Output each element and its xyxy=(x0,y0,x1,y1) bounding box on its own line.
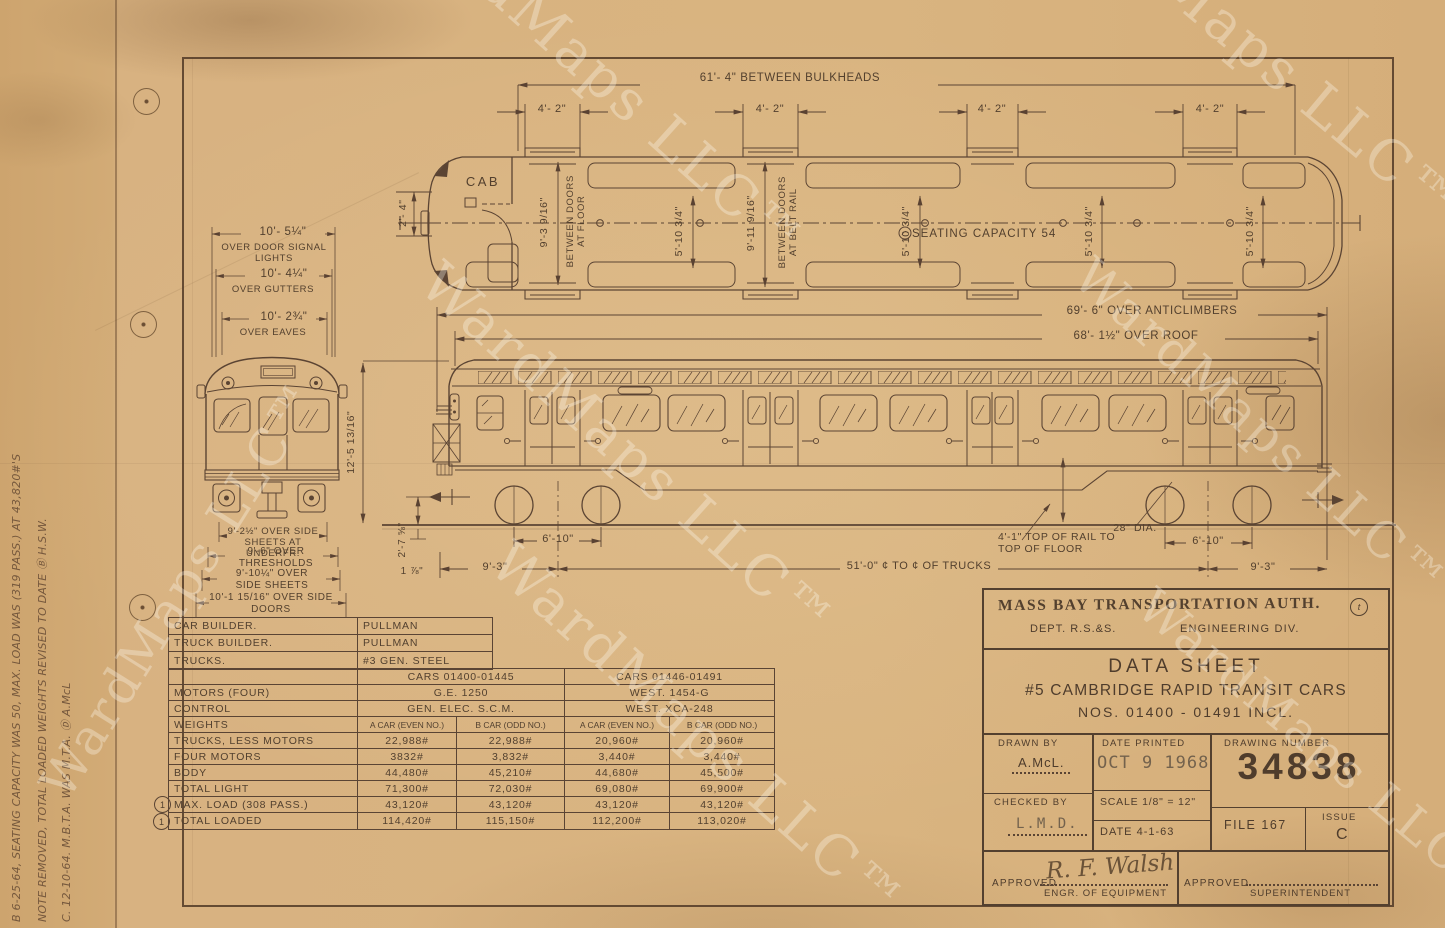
front-dim-3-value: 10'- 2¾" xyxy=(250,311,318,325)
row-value: 69,900# xyxy=(670,781,774,797)
issue-label: ISSUE xyxy=(1322,812,1357,823)
authority-stamp: MASS BAY TRANSPORTATION AUTH. xyxy=(998,595,1321,615)
row-value: 43,120# xyxy=(670,797,774,813)
group-header-2: CARS 01446-01491 xyxy=(565,669,774,685)
row-label: FOUR MOTORS xyxy=(169,749,358,765)
wheel-diameter: 28" DIA. xyxy=(1105,522,1165,534)
row-value: 22,988# xyxy=(457,733,565,749)
weights-col-3: A CAR (EVEN NO.) xyxy=(565,717,670,733)
row-value: 3832# xyxy=(358,749,457,765)
builder-table: CAR BUILDER. PULLMAN TRUCK BUILDER. PULL… xyxy=(168,617,493,670)
row-value: 71,300# xyxy=(358,781,457,797)
row-value: 113,020# xyxy=(670,813,774,829)
between-doors-beltrail-label: BETWEEN DOORS AT BELT RAIL xyxy=(777,167,799,277)
row-label: TOTAL LOADED xyxy=(169,813,358,829)
row-label: BODY xyxy=(169,765,358,781)
front-dim-2-value: 10'- 4¼" xyxy=(246,268,322,282)
row-label: TRUCKS, LESS MOTORS xyxy=(169,733,358,749)
dim-door-opening-3: 4'- 2" xyxy=(962,103,1022,116)
motors-west: WEST. 1454-G xyxy=(565,685,774,701)
dim-truck-overhang-right: 9'-3" xyxy=(1233,561,1293,574)
motors-ge: G.E. 1250 xyxy=(358,685,565,701)
control-west: WEST. XCA-248 xyxy=(565,701,774,717)
dim-small: 1 ⅞" xyxy=(390,566,434,578)
checked-by-value: L.M.D. xyxy=(1008,816,1087,836)
dim-truck-wheelbase-left: 6'-10" xyxy=(528,533,588,546)
row-value: 114,420# xyxy=(358,813,457,829)
row-label: TOTAL LIGHT xyxy=(169,781,358,797)
drawn-by-value: A.McL. xyxy=(1012,755,1070,774)
row-value: 45,210# xyxy=(457,765,565,781)
date-printed-stamp: OCT 9 1968 xyxy=(1097,753,1209,773)
cab-label: CAB xyxy=(460,174,506,189)
date-printed-label: DATE PRINTED xyxy=(1102,738,1185,749)
row-value: 44,680# xyxy=(565,765,670,781)
table-label: TRUCKS. xyxy=(169,652,358,669)
row-value: 20,960# xyxy=(565,733,670,749)
table-value: PULLMAN xyxy=(358,618,492,635)
drawn-by-label: DRAWN BY xyxy=(998,738,1058,749)
row-value: 69,080# xyxy=(565,781,670,797)
note-mark-2: 1 xyxy=(153,813,170,830)
table-label: TRUCK BUILDER. xyxy=(169,635,358,652)
dim-over-anticlimbers: 69'- 6" OVER ANTICLIMBERS xyxy=(1046,305,1258,319)
note-mark-1: 1 xyxy=(154,796,171,813)
between-doors-floor-label: BETWEEN DOORS AT FLOOR xyxy=(565,166,587,276)
title-block: MASS BAY TRANSPORTATION AUTH. t DEPT. R.… xyxy=(982,588,1390,906)
table-label: CAR BUILDER. xyxy=(169,618,358,635)
side-elevation xyxy=(363,307,1396,578)
file-value: FILE 167 xyxy=(1224,818,1287,832)
front-dim-b4: 10'-1 15/16" OVER SIDE DOORS xyxy=(208,592,334,616)
front-dim-1-label: OVER DOOR SIGNAL LIGHTS xyxy=(208,242,340,264)
row-value: 45,500# xyxy=(670,765,774,781)
approved-dotted-line xyxy=(1040,872,1168,886)
date-value: DATE 4-1-63 xyxy=(1100,826,1174,838)
table-cell-empty xyxy=(169,669,358,685)
corner-mark: t xyxy=(1350,598,1368,616)
dim-coupler-height: 2'-7 ⅝" xyxy=(397,508,409,572)
row-value: 43,120# xyxy=(565,797,670,813)
dim-door-opening-2: 4'- 2" xyxy=(740,103,800,116)
engr-of-equipment: ENGR. OF EQUIPMENT xyxy=(1044,888,1167,899)
front-dim-2-label: OVER GUTTERS xyxy=(230,284,316,295)
dim-car-width-4: 5'-10 3/4" xyxy=(1244,189,1256,273)
row-value: 112,200# xyxy=(565,813,670,829)
row-value: 3,440# xyxy=(670,749,774,765)
dim-car-width-3: 5'-10 3/4" xyxy=(1083,189,1095,273)
row-value: 43,120# xyxy=(358,797,457,813)
dim-truck-overhang-left: 9'-3" xyxy=(465,561,525,574)
seating-capacity: SEATING CAPACITY 54 xyxy=(912,228,1107,242)
dim-over-roof: 68'- 1½" OVER ROOF xyxy=(1050,330,1222,344)
row-value: 20,960# xyxy=(670,733,774,749)
dept-label: DEPT. R.S.&S. xyxy=(1030,623,1116,635)
group-header-1: CARS 01400-01445 xyxy=(358,669,565,685)
table-value: #3 GEN. STEEL xyxy=(358,652,492,669)
row-value: 3,832# xyxy=(457,749,565,765)
car-numbers: NOS. 01400 - 01491 INCL. xyxy=(984,704,1388,720)
table-value: PULLMAN xyxy=(358,635,492,652)
dim-door-opening-1: 4'- 2" xyxy=(522,103,582,116)
sheet-subtitle: #5 CAMBRIDGE RAPID TRANSIT CARS xyxy=(984,682,1388,700)
dim-truck-centers: 51'-0" ¢ TO ¢ OF TRUCKS xyxy=(838,560,1000,573)
approved2-label: APPROVED xyxy=(1184,878,1249,889)
dim-between-doors-floor: 9'-3 9/16" xyxy=(538,182,550,262)
drawing-number: 34838 xyxy=(1210,746,1388,788)
front-dim-3-label: OVER EAVES xyxy=(236,327,310,338)
superintendent: SUPERINTENDENT xyxy=(1250,888,1351,899)
row-value: 3,440# xyxy=(565,749,670,765)
row-value: 72,030# xyxy=(457,781,565,797)
dim-rail-to-floor: 4'-1" TOP OF RAIL TO TOP OF FLOOR xyxy=(998,531,1136,556)
row-label: MAX. LOAD (308 PASS.) xyxy=(169,797,358,813)
motors-label: MOTORS (FOUR) xyxy=(169,685,358,701)
division-label: ENGINEERING DIV. xyxy=(1180,623,1300,635)
dim-car-width-1: 5'-10 3/4" xyxy=(673,189,685,273)
sheet-title: DATA SHEET xyxy=(984,656,1388,678)
weights-col-4: B CAR (ODD NO.) xyxy=(670,717,774,733)
issue-value: C xyxy=(1336,826,1348,844)
weights-col-1: A CAR (EVEN NO.) xyxy=(358,717,457,733)
blueprint-sheet: 61'- 4" BETWEEN BULKHEADS 4'- 2" 4'- 2" … xyxy=(0,0,1445,928)
dim-height-rail-to-roof: 12'-5 13/16" xyxy=(345,394,357,490)
weights-col-2: B CAR (ODD NO.) xyxy=(457,717,565,733)
front-dim-b2: 9'-6" OVER THRESHOLDS xyxy=(226,546,326,570)
checked-by-label: CHECKED BY xyxy=(994,797,1068,808)
row-value: 22,988# xyxy=(358,733,457,749)
row-value: 115,150# xyxy=(457,813,565,829)
control-ge: GEN. ELEC. S.C.M. xyxy=(358,701,565,717)
equipment-weights-table: CARS 01400-01445 CARS 01446-01491 MOTORS… xyxy=(168,668,775,830)
dim-between-bulkheads: 61'- 4" BETWEEN BULKHEADS xyxy=(642,72,938,86)
dim-door-opening-4: 4'- 2" xyxy=(1180,103,1240,116)
scale-value: SCALE 1/8" = 12" xyxy=(1100,796,1196,808)
weights-label: WEIGHTS xyxy=(169,717,358,733)
margin-note-2: NOTE REMOVED, TOTAL LOADED WEIGHTS REVIS… xyxy=(34,518,50,922)
approved2-dotted-line xyxy=(1246,872,1378,886)
dim-between-doors-beltrail: 9'-11 9/16" xyxy=(745,179,757,267)
margin-note-3: C. 12-10-64. M.B.T.A. WAS M.T.A. Ⓓ A.McL xyxy=(58,682,74,922)
control-label: CONTROL xyxy=(169,701,358,717)
dim-car-width-2: 5'-10 3/4" xyxy=(900,189,912,273)
row-value: 44,480# xyxy=(358,765,457,781)
margin-note-1: B 6-25-64, SEATING CAPACITY WAS 50, MAX.… xyxy=(10,454,23,922)
dim-nose: 2'- 4" xyxy=(397,191,409,235)
front-dim-b3: 9'-10¼" OVER SIDE SHEETS xyxy=(218,568,326,592)
dim-truck-wheelbase-right: 6'-10" xyxy=(1178,535,1238,548)
row-value: 43,120# xyxy=(457,797,565,813)
front-dim-1-value: 10'- 5¼" xyxy=(242,226,324,240)
